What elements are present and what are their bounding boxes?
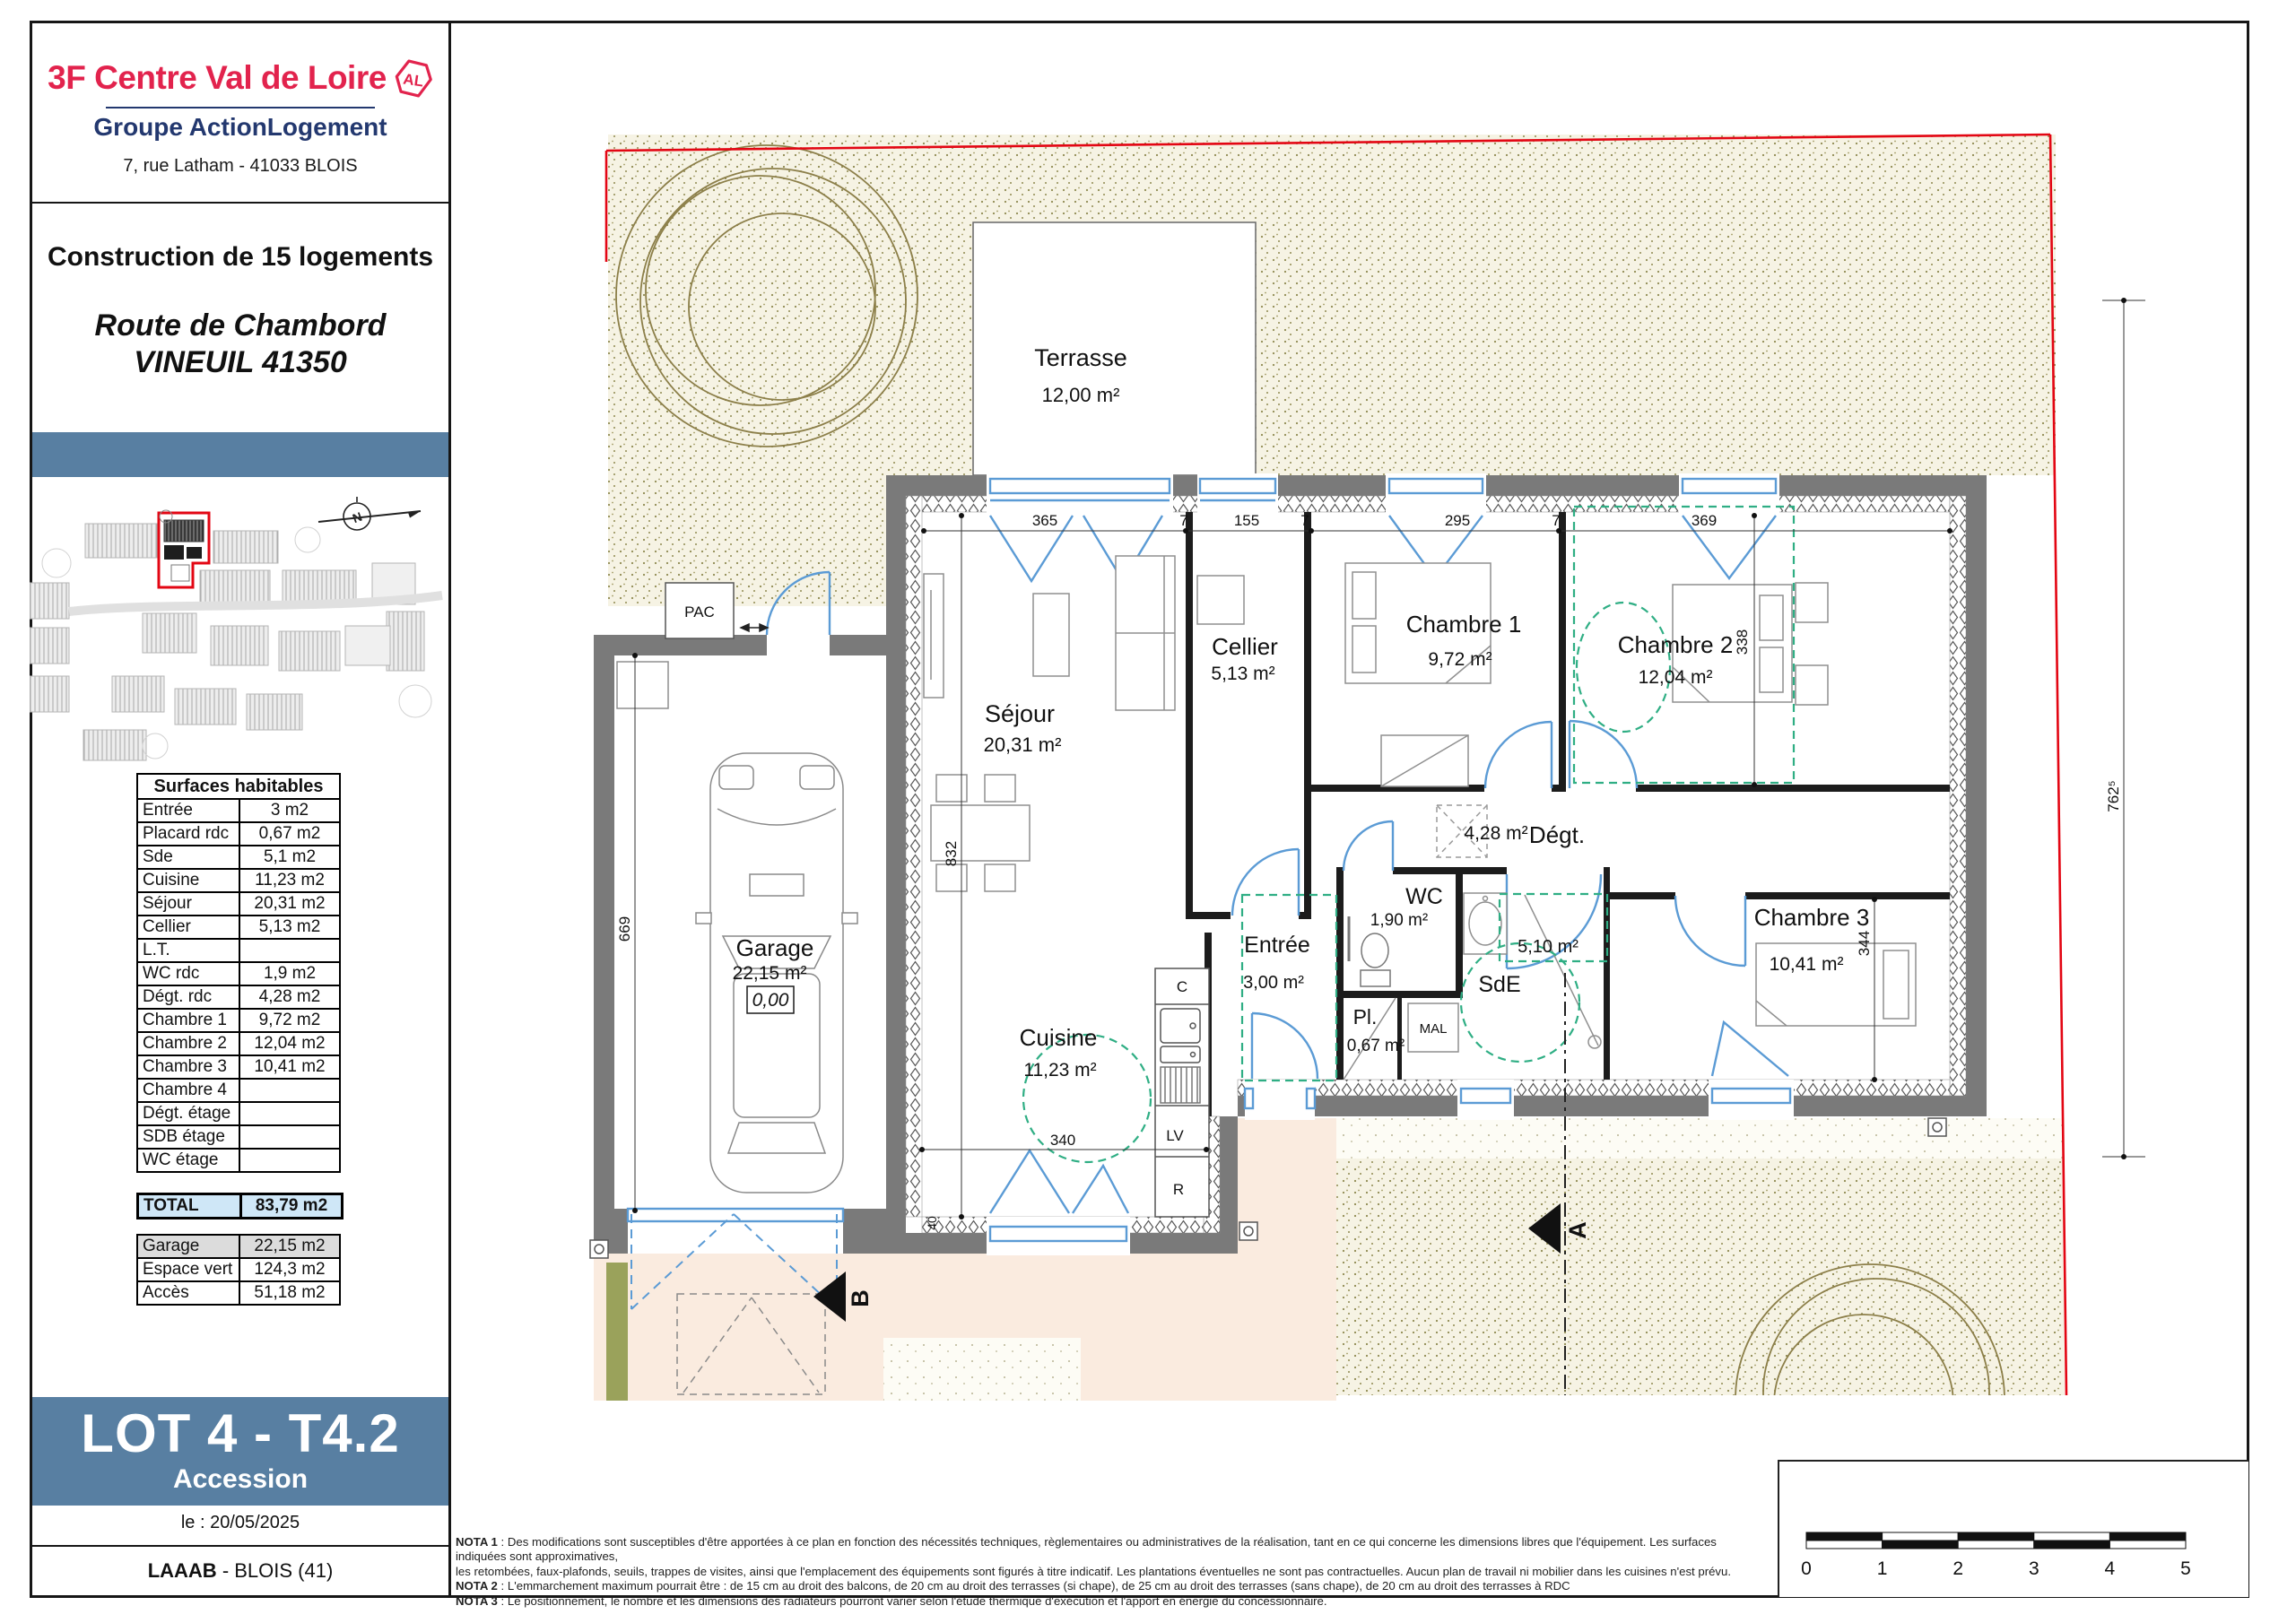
dim-669: 669: [616, 916, 633, 942]
scale-tick-0: 0: [1801, 1558, 1812, 1579]
lot-subtitle: Accession: [32, 1464, 448, 1495]
table-row: Dégt. rdc4,28 m2: [137, 985, 340, 1009]
scale-tick-1: 1: [1877, 1558, 1888, 1579]
room-area-chambre2: 12,04 m²: [1639, 667, 1713, 688]
kitchen-c-label: C: [1177, 978, 1187, 995]
room-area-chambre1: 9,72 m²: [1428, 649, 1492, 670]
green-strip: [606, 1263, 628, 1401]
water-heater: [617, 662, 668, 708]
nota-line: NOTA 3 : Le positionnement, le nombre et…: [456, 1594, 1765, 1609]
table-header: Surfaces habitables: [137, 774, 340, 799]
table-row: Espace vert124,3 m2: [137, 1258, 340, 1281]
date-row: le : 20/05/2025: [32, 1506, 448, 1547]
project-street: Route de Chambord: [32, 308, 448, 343]
scale-bar: 0 1 2 3 4 5: [1779, 1462, 2248, 1597]
table-row: Accès51,18 m2: [137, 1281, 340, 1305]
blue-band: [32, 432, 448, 477]
room-area-entree: 3,00 m²: [1243, 973, 1304, 993]
north-arrow-icon: N: [318, 497, 421, 530]
nota-block: NOTA 1 : Des modifications sont suscepti…: [456, 1535, 1765, 1609]
total-value: 83,79 m2: [241, 1194, 343, 1219]
sofa: [1116, 556, 1175, 710]
site-houses: [30, 524, 442, 760]
dim-832: 832: [943, 841, 960, 866]
dim-369: 369: [1692, 512, 1717, 529]
nota-line: NOTA 1 : Des modifications sont suscepti…: [456, 1535, 1765, 1565]
dim-365: 365: [1032, 512, 1057, 529]
pac-label: PAC: [684, 603, 715, 621]
room-label-degt: Dégt.: [1529, 821, 1585, 848]
room-label-sejour: Séjour: [985, 700, 1055, 727]
dim-155: 155: [1234, 512, 1259, 529]
room-area-sejour: 20,31 m²: [984, 733, 1062, 756]
room-area-garage: 22,15 m²: [733, 963, 807, 984]
firm-name: LAAAB: [148, 1559, 217, 1582]
room-area-sde: 5,10 m²: [1518, 937, 1578, 957]
dim-7: 7: [1300, 512, 1309, 529]
dim-295: 295: [1445, 512, 1470, 529]
room-label-entree: Entrée: [1244, 933, 1310, 958]
firm-location: - BLOIS (41): [217, 1559, 334, 1582]
site-thumbnail: N: [30, 477, 448, 773]
room-label-cellier: Cellier: [1212, 633, 1278, 660]
table-row: L.T.: [137, 939, 340, 962]
brand-row: 3F Centre Val de Loire AL: [32, 59, 448, 100]
al-hexagon-icon: AL: [394, 59, 433, 100]
lot-title: LOT 4 - T4.2: [32, 1402, 448, 1464]
table-row: Séjour20,31 m2: [137, 892, 340, 916]
group-name: Groupe ActionLogement: [32, 113, 448, 142]
total-row: TOTAL83,79 m2: [136, 1193, 344, 1219]
firm-row: LAAAB - BLOIS (41): [32, 1547, 448, 1608]
table-row: WC étage: [137, 1149, 340, 1172]
scale-tick-4: 4: [2105, 1558, 2116, 1579]
table-row: Chambre 212,04 m2: [137, 1032, 340, 1055]
project-title: Construction de 15 logements: [32, 242, 448, 273]
room-label-terrasse: Terrasse: [1034, 344, 1127, 371]
table-row: Garage22,15 m2: [137, 1235, 340, 1258]
dim-7: 7: [1179, 512, 1187, 529]
kitchen-r-label: R: [1173, 1181, 1184, 1198]
room-label-cuisine: Cuisine: [1020, 1024, 1098, 1051]
table-row: Chambre 19,72 m2: [137, 1009, 340, 1032]
brand-name: 3F Centre Val de Loire: [48, 59, 387, 97]
table-row: Sde5,1 m2: [137, 846, 340, 869]
scale-tick-2: 2: [1952, 1558, 1963, 1579]
svg-text:AL: AL: [402, 71, 424, 91]
dim-344: 344: [1856, 931, 1873, 956]
room-area-cuisine: 11,23 m²: [1023, 1060, 1096, 1081]
room-label-chambre1: Chambre 1: [1406, 611, 1522, 638]
floor-plan: Terrasse 12,00 m²: [451, 21, 2247, 1460]
address: 7, rue Latham - 41033 BLOIS: [32, 156, 448, 177]
window-cellier: [1197, 473, 1278, 514]
logo-block: 3F Centre Val de Loire AL Groupe ActionL…: [32, 23, 448, 202]
project-title-block: Construction de 15 logements Route de Ch…: [32, 202, 448, 430]
terrace: Terrasse 12,00 m²: [973, 222, 1256, 475]
table-row: Placard rdc0,67 m2: [137, 822, 340, 846]
closet-chambre1: [1381, 735, 1468, 786]
cellier-appliance: [1197, 576, 1244, 624]
project-city: VINEUIL 41350: [32, 345, 448, 380]
dim-340: 340: [1050, 1132, 1075, 1149]
nota-line: NOTA 2 : L'emmarchement maximum pourrait…: [456, 1579, 1765, 1593]
room-area-chambre3: 10,41 m²: [1770, 954, 1844, 975]
scale-tick-3: 3: [2029, 1558, 2039, 1579]
annex-table: Garage22,15 m2 Espace vert124,3 m2 Accès…: [136, 1234, 341, 1306]
room-area-pl: 0,67 m²: [1347, 1037, 1405, 1055]
level-value: 0,00: [752, 990, 789, 1011]
brand-rule: [106, 107, 375, 108]
room-label-sde: SdE: [1478, 972, 1520, 997]
lot-banner: LOT 4 - T4.2 Accession: [32, 1397, 448, 1506]
room-label-wc: WC: [1405, 884, 1443, 909]
sideboard: [924, 574, 944, 698]
kitchen-counter: [1155, 968, 1209, 1217]
surfaces-table: Surfaces habitables Entrée3 m2 Placard r…: [136, 773, 341, 1173]
window-sde: [1457, 1080, 1514, 1120]
room-area-degt: 4,28 m²: [1464, 823, 1527, 844]
room-label-garage: Garage: [736, 934, 814, 961]
table-row: SDB étage: [137, 1125, 340, 1149]
table-row: Chambre 310,41 m2: [137, 1055, 340, 1079]
room-label-chambre3: Chambre 3: [1754, 904, 1870, 931]
dim-7: 7: [1552, 512, 1560, 529]
dim-40: 40: [925, 1216, 939, 1230]
table-row: Entrée3 m2: [137, 799, 340, 822]
table-row: Cuisine11,23 m2: [137, 869, 340, 892]
nota-line: les retombées, faux-plafonds, seuils, tr…: [456, 1565, 1765, 1579]
table-row: Dégt. étage: [137, 1102, 340, 1125]
scale-bar-box: 0 1 2 3 4 5: [1778, 1460, 2248, 1597]
svg-text:B: B: [847, 1289, 874, 1307]
svg-text:N: N: [351, 509, 364, 525]
kitchen-lv-label: LV: [1166, 1127, 1184, 1144]
room-area-wc: 1,90 m²: [1370, 911, 1428, 930]
scale-tick-5: 5: [2180, 1558, 2191, 1579]
dim-338: 338: [1734, 629, 1751, 655]
svg-text:A: A: [1564, 1221, 1591, 1239]
coffee-table: [1033, 594, 1069, 676]
table-row: Cellier5,13 m2: [137, 916, 340, 939]
dim-762: 762⁵: [2105, 780, 2122, 811]
scale-ticks: 0 1 2 3 4 5: [1801, 1558, 2191, 1579]
room-label-pl: Pl.: [1353, 1005, 1378, 1028]
room-label-chambre2: Chambre 2: [1618, 631, 1734, 658]
table-row: Chambre 4: [137, 1079, 340, 1102]
table-row: WC rdc1,9 m2: [137, 962, 340, 985]
total-label: TOTAL: [138, 1194, 241, 1219]
room-area-terrasse: 12,00 m²: [1042, 384, 1120, 406]
room-area-cellier: 5,13 m²: [1211, 664, 1274, 684]
mal-label: MAL: [1420, 1021, 1448, 1037]
